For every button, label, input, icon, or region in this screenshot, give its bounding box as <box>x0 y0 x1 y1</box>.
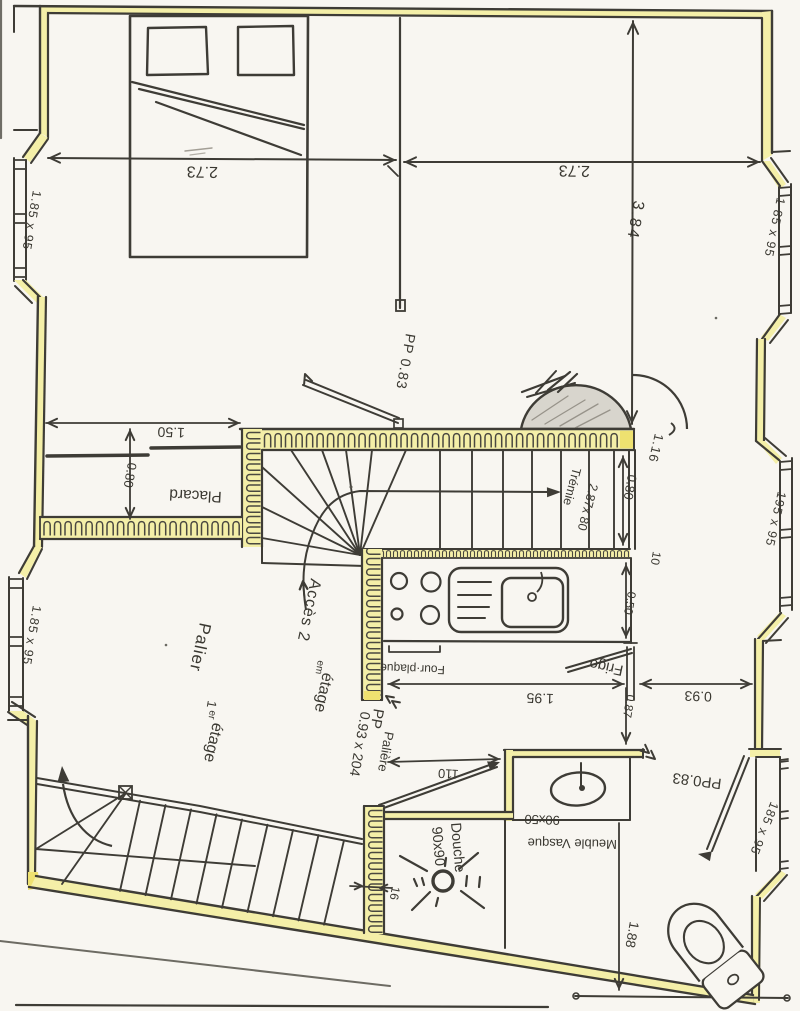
svg-text:10: 10 <box>648 550 664 566</box>
svg-text:Four·plaque: Four·plaque <box>380 661 445 677</box>
svg-text:0.93: 0.93 <box>684 688 712 705</box>
svg-text:Meuble Vasque: Meuble Vasque <box>527 835 617 852</box>
svg-text:16: 16 <box>387 885 403 901</box>
svg-text:1.95: 1.95 <box>526 690 554 707</box>
svg-text:1.50: 1.50 <box>157 424 185 441</box>
svg-text:2.73: 2.73 <box>559 161 591 179</box>
svg-text:2.73: 2.73 <box>187 162 219 180</box>
svg-text:Placard: Placard <box>169 485 222 505</box>
svg-text:90x50: 90x50 <box>524 812 560 828</box>
